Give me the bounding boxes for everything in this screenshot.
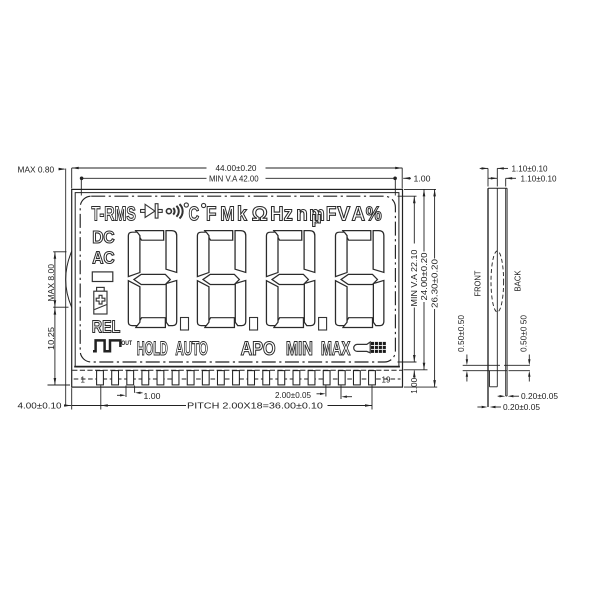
svg-text:%: % <box>366 203 382 225</box>
svg-text:DC: DC <box>92 227 115 247</box>
svg-text:REL: REL <box>92 318 121 337</box>
svg-text:MIN V.A 22.10: MIN V.A 22.10 <box>410 249 419 306</box>
svg-text:BACK: BACK <box>513 270 522 292</box>
svg-text:24.00±0.20: 24.00±0.20 <box>420 252 429 300</box>
svg-text:A: A <box>352 203 366 226</box>
svg-text:FRONT: FRONT <box>473 270 482 296</box>
svg-text:10.25: 10.25 <box>46 327 55 350</box>
svg-text:APO: APO <box>241 338 276 360</box>
svg-text:k: k <box>237 203 247 225</box>
svg-text:F: F <box>206 202 217 225</box>
svg-text:T-RMS: T-RMS <box>92 202 136 225</box>
svg-text:V: V <box>337 203 351 225</box>
svg-text:Ω: Ω <box>252 203 268 225</box>
svg-text:2.00±0.05: 2.00±0.05 <box>275 391 312 400</box>
svg-text:OUT: OUT <box>121 341 132 348</box>
svg-text:1.00: 1.00 <box>414 174 431 184</box>
svg-text:0.50±0.50: 0.50±0.50 <box>457 315 466 352</box>
svg-text:19: 19 <box>382 375 391 384</box>
svg-text:26.30±0.20: 26.30±0.20 <box>430 259 439 308</box>
svg-text:MAX 0.80: MAX 0.80 <box>18 165 55 174</box>
svg-text:C: C <box>189 202 200 225</box>
svg-text:F: F <box>326 202 337 225</box>
svg-text:0.50±0 50: 0.50±0 50 <box>520 315 529 352</box>
svg-text:44.00±0.20: 44.00±0.20 <box>216 164 257 173</box>
svg-text:1: 1 <box>81 375 86 384</box>
svg-text:PITCH 2.00X18=36.00±0.10: PITCH 2.00X18=36.00±0.10 <box>187 402 323 411</box>
svg-text:HOLD: HOLD <box>137 339 168 360</box>
svg-text:MIN V.A 42.00: MIN V.A 42.00 <box>209 174 259 183</box>
svg-text:Hz: Hz <box>270 204 293 226</box>
svg-text:M: M <box>220 202 234 224</box>
svg-text:AC: AC <box>92 247 115 267</box>
svg-text:AUTO: AUTO <box>175 339 207 360</box>
svg-text:MIN: MIN <box>286 338 313 359</box>
svg-text:n: n <box>296 203 307 226</box>
svg-text:µ: µ <box>312 208 322 226</box>
svg-text:0.20±0.05: 0.20±0.05 <box>503 403 540 412</box>
svg-text:0.20±0.05: 0.20±0.05 <box>521 392 558 401</box>
svg-text:1.00: 1.00 <box>144 391 161 401</box>
svg-text:MAX: MAX <box>321 339 351 360</box>
svg-text:MAX 8.00: MAX 8.00 <box>47 264 56 302</box>
svg-text:1.10±0.10: 1.10±0.10 <box>521 174 558 183</box>
svg-text:1.00: 1.00 <box>410 377 419 393</box>
svg-text:4.00±0.10: 4.00±0.10 <box>18 401 62 410</box>
svg-text:1.10±0.10: 1.10±0.10 <box>512 164 549 173</box>
